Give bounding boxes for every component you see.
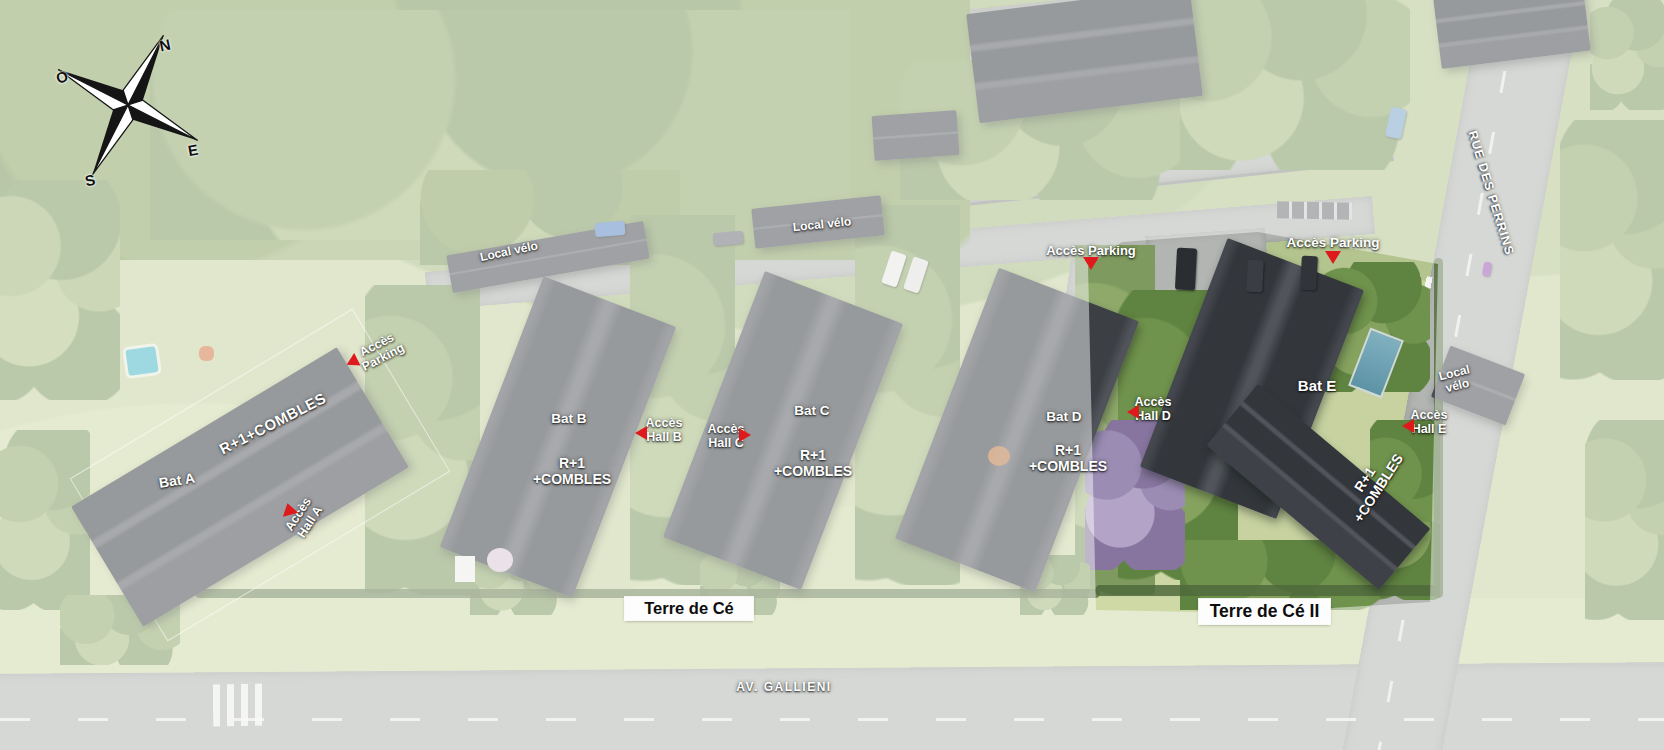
label-bat-b-name: Bat B [551, 411, 586, 426]
car-grey [712, 231, 743, 247]
car-blue [594, 221, 625, 238]
orange-shrub [988, 446, 1010, 466]
orange-tent [199, 346, 214, 361]
crosswalk [213, 684, 266, 727]
marker-acces-hall-e-icon[interactable] [1402, 419, 1414, 433]
label-bat-e-name: Bat E [1298, 378, 1336, 395]
road-label-av-gallieni: AV. GALLIENI [736, 681, 831, 694]
building-shed-north [872, 110, 960, 161]
label-bat-d-levels: R+1 +COMBLES [1029, 443, 1107, 474]
marker-acces-hall-b-icon[interactable] [635, 426, 647, 440]
swimming-pool-west [125, 346, 158, 376]
car-dark-2 [1246, 260, 1264, 293]
hedge-south-east [1095, 585, 1440, 596]
trees-top-corner [1590, 0, 1664, 110]
label-bat-d-name: Bat D [1046, 409, 1081, 424]
label-bat-c-levels: R+1 +COMBLES [774, 448, 852, 479]
marker-acces-hall-d-icon[interactable] [1127, 405, 1139, 419]
white-shed [455, 556, 475, 582]
label-acces-parking-east: Accès Parking [1286, 235, 1379, 250]
car-dark-1 [1175, 248, 1197, 291]
car-dark-3 [1300, 256, 1318, 291]
marker-acces-parking-center-icon[interactable] [1083, 257, 1099, 270]
banner-terre-de-ce-text: Terre de Cé [644, 599, 734, 618]
trees-east-verge-1 [1560, 120, 1664, 380]
label-acces-hall-e: Accès Hall E [1411, 408, 1448, 436]
label-acces-hall-d: Accès Hall D [1135, 395, 1172, 423]
marker-acces-hall-c-icon[interactable] [739, 428, 751, 442]
compass-rose: N O E S [50, 20, 220, 190]
banner-terre-de-ce-2-text: Terre de Cé II [1210, 601, 1320, 622]
label-bat-c-name: Bat C [794, 403, 829, 418]
label-acces-hall-b: Accès Hall B [646, 416, 683, 444]
trees-east-verge-2 [1585, 420, 1664, 620]
trees-left-edge [0, 180, 120, 400]
banner-terre-de-ce[interactable]: Terre de Cé [625, 597, 753, 620]
banner-terre-de-ce-2[interactable]: Terre de Cé II [1199, 599, 1330, 624]
label-bat-b-levels: R+1 +COMBLES [533, 456, 611, 487]
marker-acces-parking-east-icon[interactable] [1325, 251, 1341, 264]
compass-rose-icon [43, 20, 213, 190]
site-plan: N O E S AV. GALLIENI RUE DES PERRINS Loc… [0, 0, 1664, 750]
trees-left-mid [0, 430, 90, 610]
pink-blossom-tree [487, 548, 513, 572]
carport-row [1277, 201, 1352, 219]
